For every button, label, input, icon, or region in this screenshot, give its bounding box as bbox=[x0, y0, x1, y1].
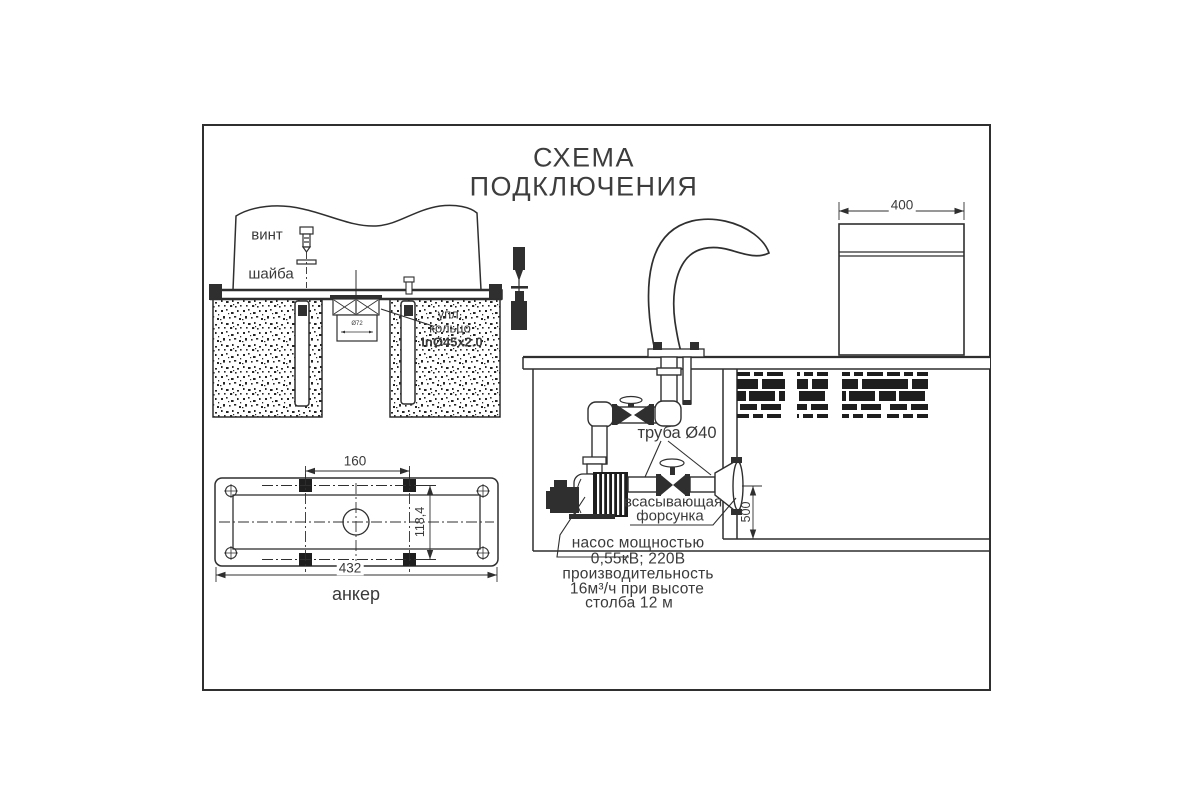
washer-label: шайба bbox=[248, 267, 293, 282]
dim-bolt-spacing: 160 bbox=[342, 454, 369, 468]
dim-plate-width: 118,4 bbox=[414, 507, 427, 537]
right-edge-bracket bbox=[489, 284, 502, 300]
diagram-title-line1: СХЕМА bbox=[533, 145, 635, 172]
elbow-left bbox=[588, 402, 613, 427]
center-hole-dim: Ø72 bbox=[351, 321, 362, 327]
dim-cascade-width: 400 bbox=[889, 198, 916, 212]
spout-flange bbox=[648, 349, 704, 357]
pool-cross-section-drawing bbox=[523, 202, 990, 557]
pump-outlet-pipe bbox=[628, 477, 658, 492]
suction-pipe bbox=[690, 477, 715, 492]
pump-motor bbox=[550, 487, 579, 513]
drain-pipe bbox=[683, 357, 691, 404]
elbow-right bbox=[655, 401, 681, 426]
dim-nozzle-depth: 500 bbox=[740, 502, 753, 523]
valve-suction bbox=[656, 459, 690, 496]
pipe-label: труба Ø40 bbox=[637, 425, 716, 442]
screw-label: винт bbox=[251, 228, 283, 243]
anchor-bolt-detail bbox=[511, 247, 528, 330]
diagram-title-line2: ПОДКЛЮЧЕНИЯ bbox=[470, 174, 699, 201]
dim-plate-length: 432 bbox=[337, 561, 364, 575]
seal-ring-spec: InØ45x2.0 bbox=[421, 336, 482, 349]
pump-note-line1: насос мощностью bbox=[572, 535, 705, 551]
schematic-page: СХЕМА ПОДКЛЮЧЕНИЯ винт шайба упл. кольцо… bbox=[0, 0, 1200, 800]
feed-pipe-vertical bbox=[661, 357, 677, 403]
stone-tile-band bbox=[737, 372, 928, 422]
seal-ring-label-line2: кольцо bbox=[429, 322, 471, 335]
suction-nozzle-label-line2: форсунка bbox=[636, 509, 704, 524]
left-edge-bracket bbox=[209, 284, 222, 300]
seal-ring-label-line1: упл. bbox=[438, 308, 463, 321]
cascade-box bbox=[839, 224, 964, 355]
pump-note-line5: столба 12 м bbox=[585, 595, 673, 611]
small-screw-icon bbox=[404, 277, 414, 294]
piping bbox=[588, 357, 691, 464]
waterfall-spout bbox=[649, 219, 769, 355]
anchor-plate-label: анкер bbox=[332, 585, 380, 603]
diagram-canvas bbox=[0, 0, 1200, 800]
anchor-slot-left bbox=[295, 301, 309, 406]
